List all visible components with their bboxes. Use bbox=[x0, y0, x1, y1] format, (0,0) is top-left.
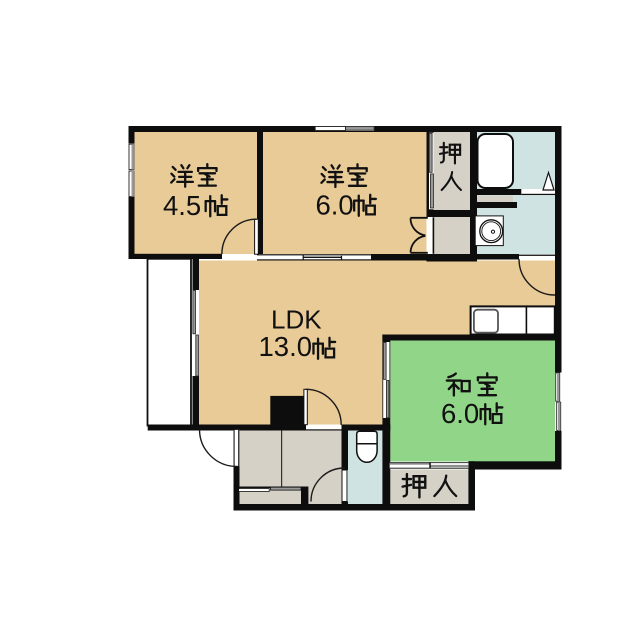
svg-text:13.0: 13.0 bbox=[259, 331, 313, 362]
svg-text:LDK: LDK bbox=[271, 305, 322, 335]
svg-text:6.0: 6.0 bbox=[316, 190, 354, 221]
svg-text:4.5: 4.5 bbox=[163, 190, 201, 221]
svg-text:6.0: 6.0 bbox=[441, 398, 479, 429]
